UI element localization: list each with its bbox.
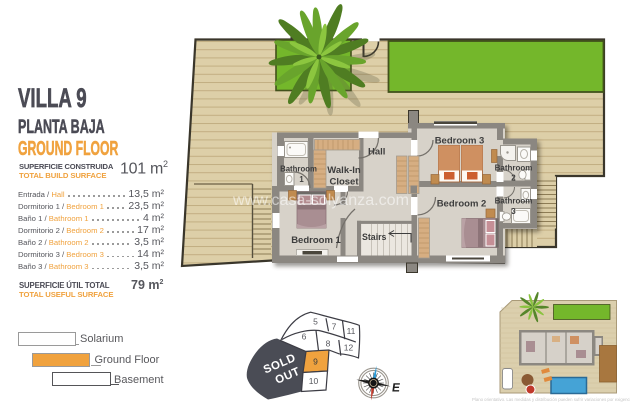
svg-text:6: 6 xyxy=(302,332,307,342)
svg-text:Closet: Closet xyxy=(329,177,359,188)
svg-text:Bedroom 3: Bedroom 3 xyxy=(435,136,485,147)
svg-text:Hall: Hall xyxy=(368,147,385,158)
svg-text:10: 10 xyxy=(309,376,319,386)
svg-text:Bedroom 1: Bedroom 1 xyxy=(291,235,341,246)
svg-text:Plano orientativo. Las medidas: Plano orientativo. Las medidas y distrib… xyxy=(472,397,630,402)
svg-text:www.casa-solyanza.com: www.casa-solyanza.com xyxy=(232,192,409,209)
svg-text:11: 11 xyxy=(347,326,356,336)
svg-text:Bedroom 2: Bedroom 2 xyxy=(437,199,487,210)
svg-text:Walk-In: Walk-In xyxy=(327,165,361,176)
svg-text:5: 5 xyxy=(313,317,318,327)
svg-text:1: 1 xyxy=(299,175,304,184)
svg-text:9: 9 xyxy=(313,357,318,367)
svg-text:7: 7 xyxy=(332,322,337,332)
svg-text:12: 12 xyxy=(344,343,354,353)
svg-text:3: 3 xyxy=(511,207,516,216)
svg-text:Bathroom: Bathroom xyxy=(280,165,317,174)
svg-text:2: 2 xyxy=(511,174,516,183)
svg-text:Stairs: Stairs xyxy=(362,232,387,242)
svg-text:8: 8 xyxy=(326,339,331,349)
svg-text:Bathroom: Bathroom xyxy=(495,164,533,173)
svg-text:E: E xyxy=(391,381,401,395)
svg-text:Bathroom: Bathroom xyxy=(495,197,533,206)
